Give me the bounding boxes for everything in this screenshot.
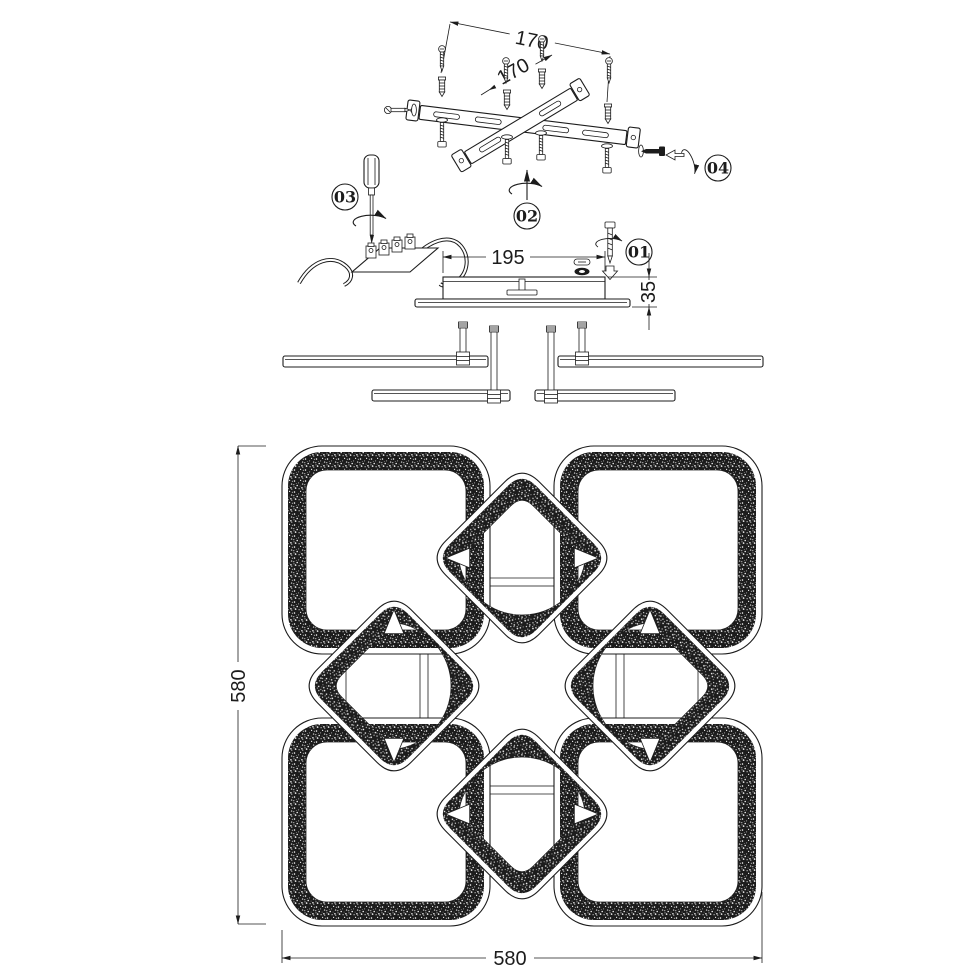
wall-anchor [604, 104, 611, 124]
step-04-label: 04 [707, 159, 729, 178]
step-01-screw [596, 222, 622, 280]
step-badge-04: 04 [705, 155, 731, 181]
step-01-label: 01 [628, 243, 650, 262]
wall-anchor [438, 77, 445, 97]
terminal-pole [379, 240, 389, 255]
step-02-label: 02 [516, 207, 538, 226]
step-badge-03: 03 [332, 184, 358, 210]
wall-anchor [503, 90, 510, 110]
threaded-post [576, 322, 589, 365]
rotate-arrow-icon [681, 148, 697, 176]
rotate-arrow-icon [509, 183, 542, 194]
end-screw-right [639, 145, 697, 176]
wall-anchor [538, 69, 545, 89]
terminal-pole [405, 234, 415, 249]
insert-direction-arrow [666, 150, 684, 160]
tapping-screw [439, 46, 446, 71]
machine-screw [602, 144, 613, 173]
fixture-bottom-view: 580 580 [227, 446, 762, 970]
dim-fixture-height-label: 580 [228, 669, 250, 702]
dim-canopy-height-label: 35 [638, 281, 660, 303]
threaded-post [545, 326, 558, 403]
terminal-block [352, 234, 438, 272]
dim-canopy-length-label: 195 [491, 247, 524, 269]
dimension-fixture-height: 580 [227, 446, 266, 924]
threaded-post [457, 322, 470, 365]
terminal-pole [366, 243, 376, 258]
step-badge-01: 01 [626, 239, 652, 265]
step-02-motion [509, 170, 542, 200]
mounting-bracket-step: 170 170 [384, 22, 731, 181]
step-badge-02: 02 [514, 203, 540, 229]
tapping-screw [606, 58, 613, 83]
threaded-post [488, 326, 501, 403]
fixture-arms [283, 322, 763, 403]
step-03-label: 03 [334, 188, 356, 207]
dim-fixture-width-label: 580 [493, 948, 526, 970]
canopy-step: 03 02 [299, 155, 660, 330]
lamp-assembly-diagram: 170 170 [0, 0, 970, 970]
rotate-arrow-icon [353, 215, 386, 226]
terminal-pole [392, 237, 402, 252]
